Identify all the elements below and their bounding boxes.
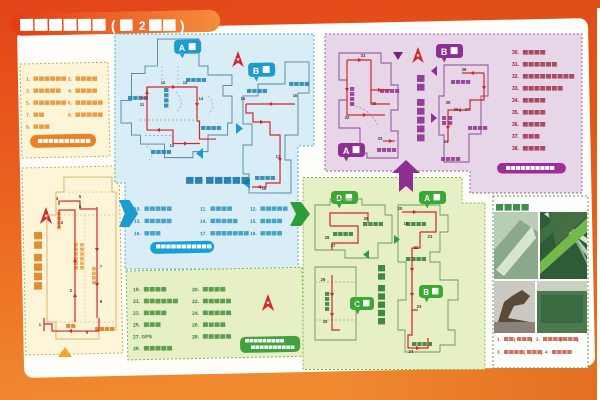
svg-text:3.: 3.: [26, 89, 30, 95]
svg-text:C: C: [354, 300, 360, 309]
svg-text:25.: 25.: [133, 322, 141, 328]
svg-text:2.: 2.: [536, 337, 540, 342]
svg-text:32.: 32.: [512, 74, 520, 80]
svg-text:29: 29: [364, 216, 369, 221]
svg-text:37.: 37.: [512, 134, 520, 140]
svg-text:A: A: [424, 194, 430, 203]
svg-text:24.: 24.: [192, 311, 200, 317]
svg-text:26.: 26.: [192, 323, 200, 329]
svg-text:34: 34: [444, 139, 449, 144]
svg-text:6.: 6.: [68, 100, 72, 106]
svg-text:25: 25: [323, 319, 328, 324]
svg-text:10: 10: [170, 143, 175, 148]
svg-text:11: 11: [140, 102, 145, 107]
svg-text:28.: 28.: [192, 334, 200, 340]
svg-text:A: A: [343, 146, 350, 156]
svg-text:26: 26: [321, 277, 326, 282]
svg-text:7.: 7.: [26, 113, 30, 119]
svg-text:16.: 16.: [134, 231, 141, 237]
svg-text:1.: 1.: [497, 337, 501, 342]
svg-text:24: 24: [409, 349, 414, 354]
svg-text:20.: 20.: [192, 287, 200, 293]
svg-text:B: B: [441, 47, 448, 57]
svg-text:27. GPS: 27. GPS: [133, 334, 153, 340]
svg-text:38.: 38.: [512, 146, 520, 152]
svg-text:13.: 13.: [134, 219, 141, 225]
svg-text:5.: 5.: [26, 101, 30, 107]
svg-text:27: 27: [331, 243, 336, 248]
svg-text:23.: 23.: [133, 311, 141, 317]
svg-text:11.: 11.: [200, 206, 207, 212]
svg-text:4.: 4.: [68, 88, 72, 94]
svg-text:14.: 14.: [200, 219, 207, 225]
svg-text:(: (: [111, 17, 116, 33]
svg-text:19.: 19.: [133, 287, 141, 293]
svg-text:23: 23: [417, 304, 422, 309]
svg-text:35.: 35.: [512, 110, 520, 116]
svg-text:4.: 4.: [545, 350, 549, 355]
svg-text:13: 13: [183, 80, 188, 85]
svg-text:29.: 29.: [133, 346, 141, 352]
svg-text:15.: 15.: [250, 219, 257, 225]
svg-text:35: 35: [446, 100, 451, 105]
svg-text:21.: 21.: [133, 299, 141, 305]
svg-text:19: 19: [404, 221, 409, 226]
svg-text:18.: 18.: [250, 231, 257, 237]
svg-text:33.: 33.: [512, 86, 520, 92]
svg-text:36.: 36.: [512, 122, 520, 128]
svg-text:14: 14: [199, 96, 204, 101]
svg-text:3.: 3.: [497, 350, 501, 355]
svg-text:15: 15: [241, 96, 246, 101]
svg-text:2: 2: [139, 19, 146, 33]
svg-text:20: 20: [398, 206, 403, 211]
svg-text:33: 33: [378, 136, 383, 141]
svg-text:12.: 12.: [250, 206, 257, 212]
svg-text:A: A: [179, 43, 186, 53]
svg-text:30.: 30.: [512, 50, 520, 56]
svg-text:16: 16: [293, 93, 298, 98]
svg-text:32: 32: [345, 115, 350, 120]
svg-text:B: B: [423, 288, 429, 297]
svg-text:36: 36: [454, 107, 459, 112]
svg-text:9.: 9.: [26, 125, 30, 131]
svg-text:2.: 2.: [68, 76, 72, 82]
svg-text:28: 28: [325, 235, 330, 240]
svg-text:38: 38: [462, 67, 467, 72]
svg-text:22: 22: [414, 245, 419, 250]
svg-text:): ): [180, 17, 185, 33]
svg-text:18: 18: [262, 186, 267, 191]
svg-text:31.: 31.: [512, 62, 520, 68]
svg-text:17.: 17.: [200, 231, 207, 237]
svg-text:22.: 22.: [192, 299, 200, 305]
svg-text:B: B: [253, 66, 260, 76]
svg-text:1.: 1.: [26, 77, 30, 83]
svg-text:12: 12: [161, 80, 166, 85]
svg-text:30: 30: [372, 101, 377, 106]
svg-text:31: 31: [361, 53, 366, 58]
svg-text:34.: 34.: [512, 98, 520, 104]
svg-text:8.: 8.: [68, 112, 72, 118]
svg-text:17: 17: [276, 154, 281, 159]
svg-text:21: 21: [428, 234, 433, 239]
svg-text:37: 37: [465, 107, 470, 112]
